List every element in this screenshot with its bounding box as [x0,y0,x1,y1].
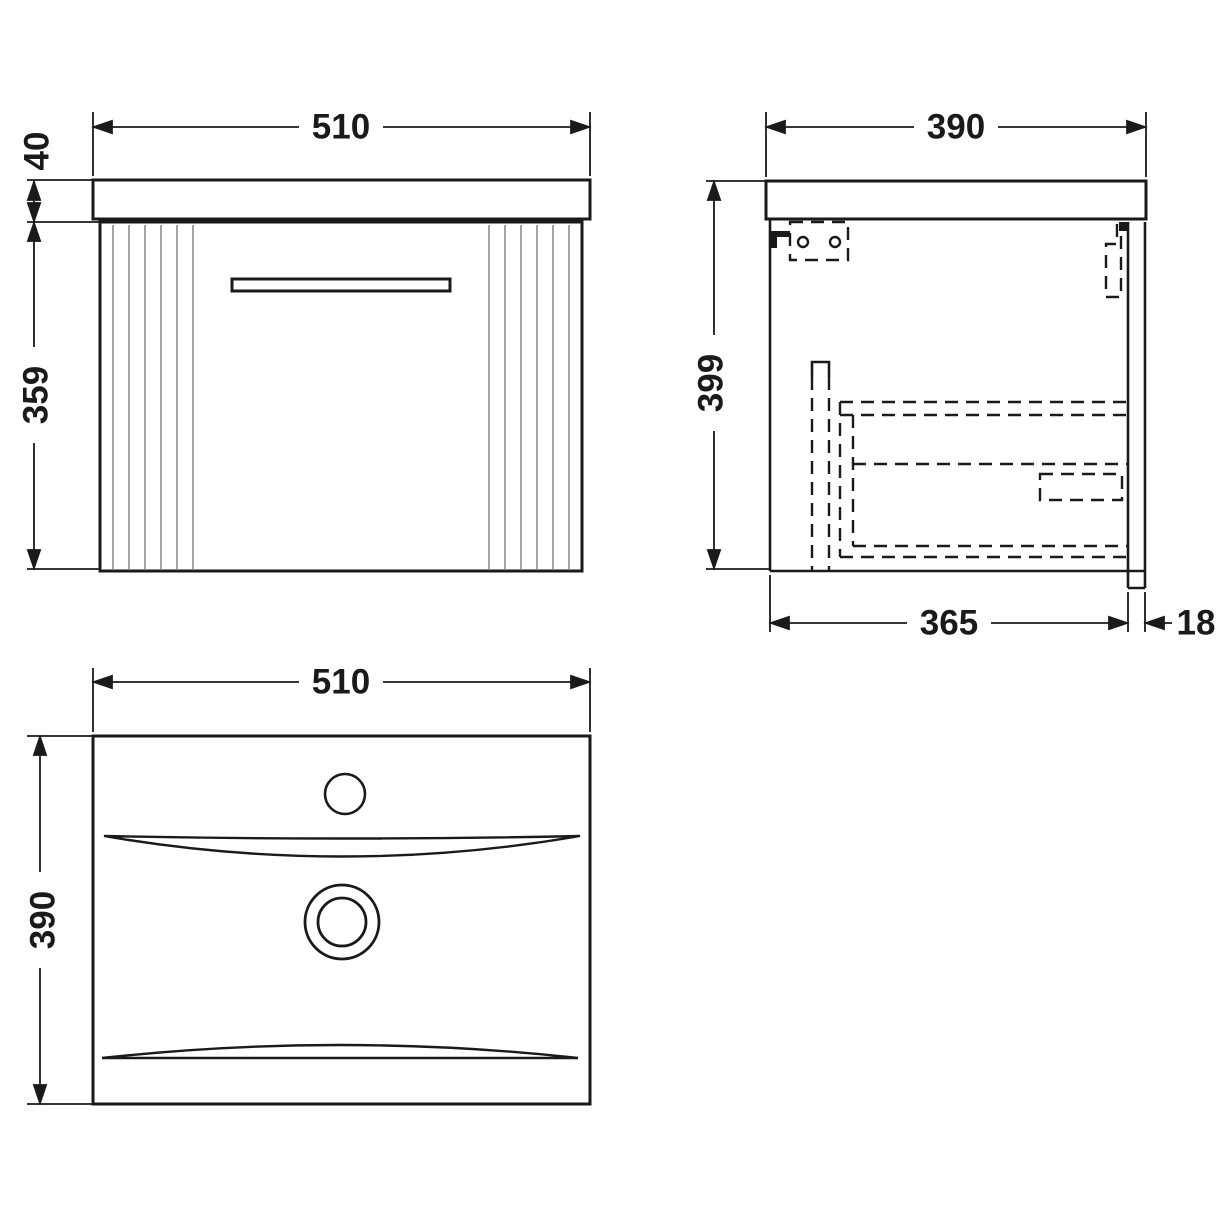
front-flutes-right [489,225,569,569]
side-dim-internal-depth: 365 [770,575,1128,643]
side-back-panel-label: 18 [1177,604,1216,643]
side-drawer-front-hidden [812,362,829,571]
side-dim-back-panel: 18 [1145,592,1215,643]
bracket-clip [771,231,790,248]
side-hanging-rail [1106,224,1121,297]
front-view: 510 40 359 [17,108,591,572]
front-dim-worktop: 40 [18,132,101,222]
front-dim-height: 359 [17,222,101,569]
plan-dim-width: 510 [93,663,590,733]
side-mounting-bracket [771,222,848,260]
plan-waste-hole [305,885,379,959]
front-worktop [93,180,590,219]
side-height-label: 399 [692,354,731,412]
front-drawer-handle [232,279,450,291]
plan-view: 510 390 [24,663,591,1105]
plan-depth-label: 390 [24,891,63,949]
plan-basin-front-contour [102,1045,578,1058]
side-dim-depth: 390 [766,108,1146,178]
side-drawer-runner [1040,474,1122,500]
plan-dim-depth: 390 [24,736,94,1104]
front-height-label: 359 [17,366,56,424]
front-width-label: 510 [312,108,370,147]
side-worktop [766,181,1146,219]
front-worktop-thickness-label: 40 [18,132,57,171]
bracket-screw-hole [830,237,840,247]
side-drawer-box-hidden [840,402,1128,557]
side-depth-label: 390 [927,108,985,147]
side-dim-height: 399 [692,181,771,569]
plan-width-label: 510 [312,663,370,702]
plan-basin-back-contour [104,836,580,857]
side-back-panel [1119,222,1145,588]
bracket-screw-hole [798,237,808,247]
vanity-technical-drawing: 510 40 359 [0,0,1224,1224]
drawing-canvas: 510 40 359 [0,0,1224,1224]
front-dim-width: 510 [93,108,590,177]
front-cabinet [100,222,582,571]
front-flutes-left [113,225,193,569]
plan-tap-hole [325,774,365,814]
plan-basin-outline [93,736,590,1104]
side-internal-depth-label: 365 [920,604,978,643]
side-view: 390 399 365 18 [692,108,1216,643]
